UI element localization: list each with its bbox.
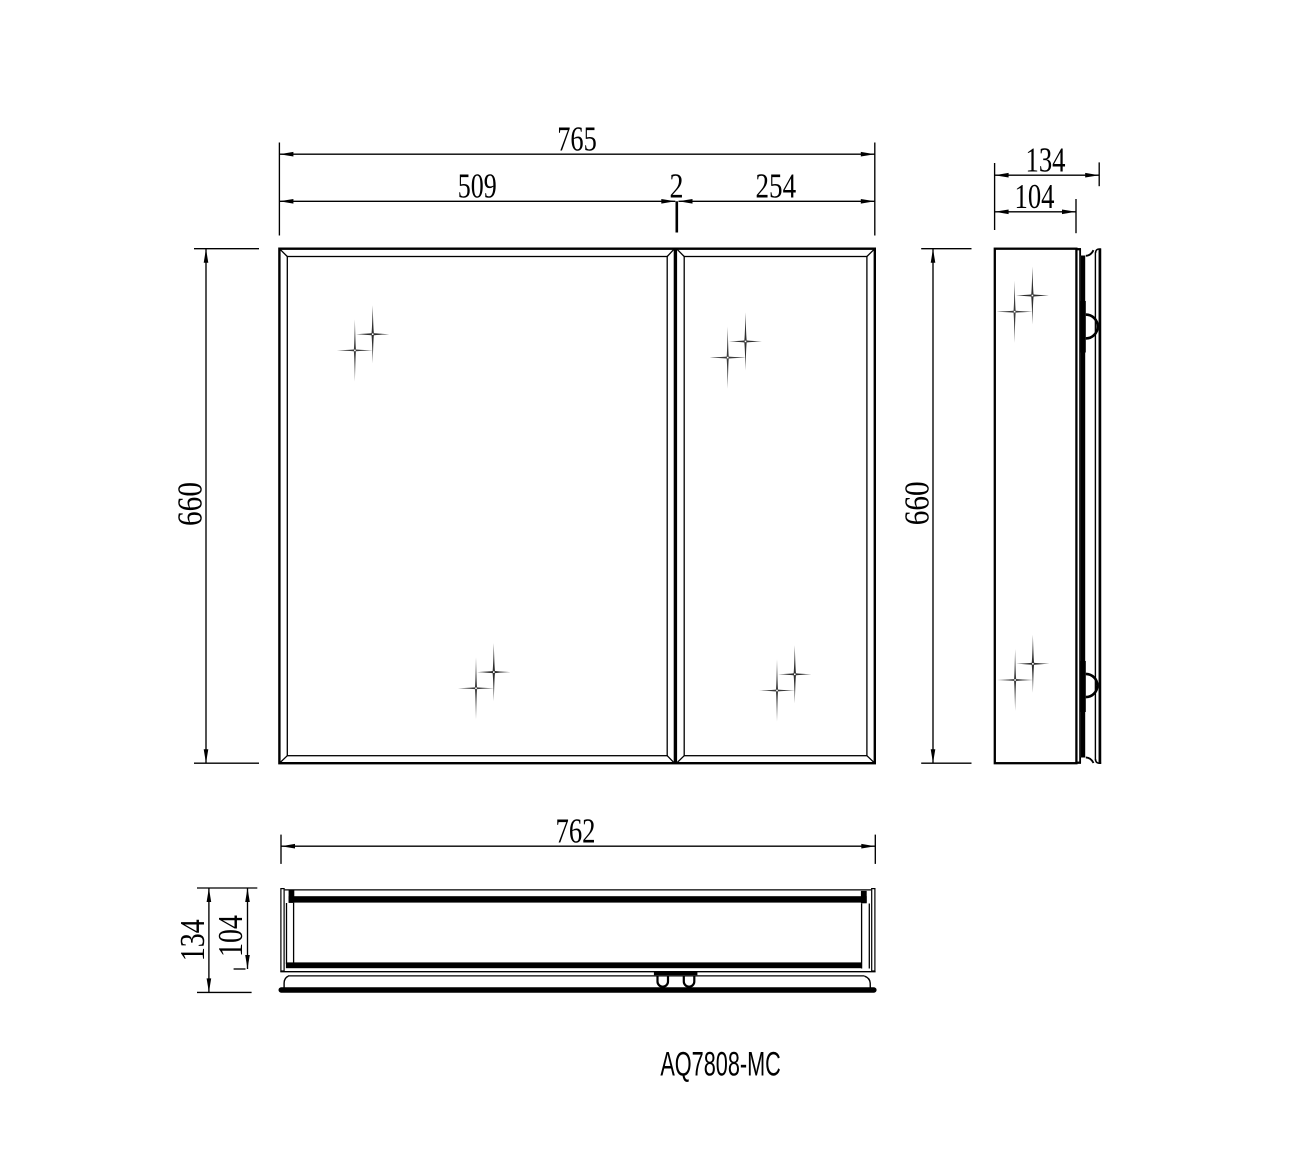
svg-text:AQ7808-MC: AQ7808-MC (660, 1045, 781, 1083)
svg-text:254: 254 (756, 166, 797, 205)
svg-text:104: 104 (1015, 177, 1055, 216)
svg-text:134: 134 (173, 919, 212, 961)
svg-text:509: 509 (458, 166, 497, 205)
svg-text:660: 660 (171, 482, 210, 526)
svg-text:2: 2 (670, 166, 684, 205)
svg-text:660: 660 (897, 481, 936, 525)
svg-text:765: 765 (557, 119, 597, 158)
svg-text:104: 104 (211, 915, 250, 957)
svg-text:134: 134 (1026, 140, 1066, 179)
svg-text:762: 762 (556, 811, 596, 850)
